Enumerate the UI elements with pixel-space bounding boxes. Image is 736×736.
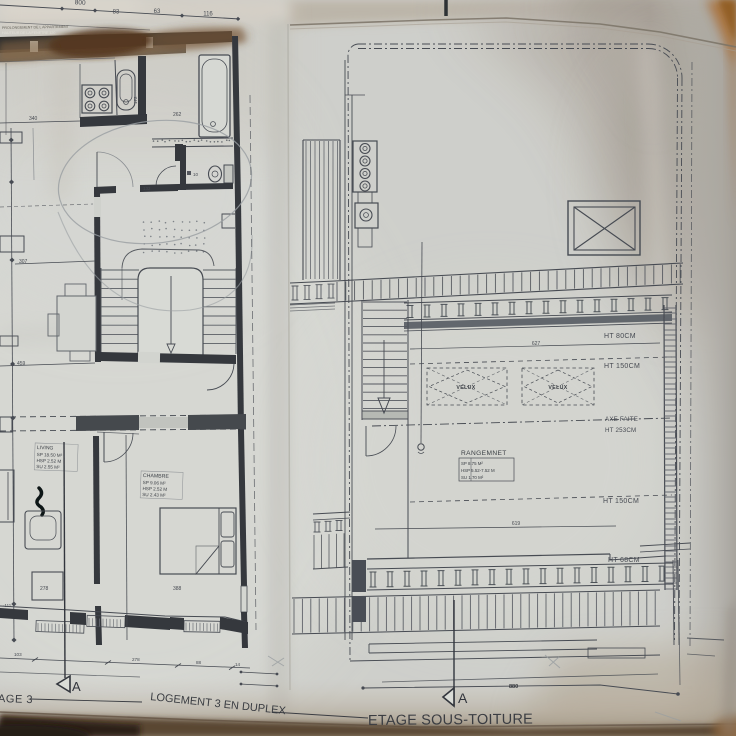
svg-text:SP 8.75 M²: SP 8.75 M²: [461, 461, 483, 466]
svg-text:14: 14: [235, 662, 241, 667]
svg-text:307: 307: [19, 259, 28, 265]
svg-text:AGE 3: AGE 3: [0, 693, 33, 706]
svg-text:627: 627: [532, 341, 541, 347]
svg-text:880: 880: [509, 684, 518, 690]
svg-text:88: 88: [196, 660, 202, 665]
svg-text:HAUTEUR DE LA FENETRE 120: HAUTEUR DE LA FENETRE 120: [2, 31, 55, 35]
svg-text:800: 800: [75, 0, 87, 7]
svg-text:HSP 5.52-7.52 M: HSP 5.52-7.52 M: [461, 468, 495, 473]
svg-text:CHAMBRE: CHAMBRE: [143, 473, 170, 480]
svg-text:SU 2.43 M²: SU 2.43 M²: [142, 492, 166, 498]
svg-text:340: 340: [29, 116, 38, 122]
svg-text:A: A: [458, 690, 468, 706]
svg-text:83: 83: [113, 10, 120, 16]
svg-text:RANGEMNET: RANGEMNET: [461, 450, 507, 457]
svg-text:HSP 2.52 M: HSP 2.52 M: [142, 486, 167, 492]
svg-text:132: 132: [143, 186, 151, 191]
svg-text:278: 278: [132, 657, 140, 662]
svg-text:619: 619: [512, 521, 521, 527]
svg-text:SU 1.70 M²: SU 1.70 M²: [461, 475, 484, 480]
svg-text:HT 253CM: HT 253CM: [605, 427, 636, 434]
svg-text:459: 459: [17, 361, 26, 367]
svg-text:HT 80CM: HT 80CM: [604, 333, 636, 340]
svg-text:SU 2.55 M²: SU 2.55 M²: [36, 464, 60, 470]
svg-text:262: 262: [173, 112, 182, 118]
svg-text:AXE FAITE: AXE FAITE: [605, 416, 638, 423]
svg-text:116: 116: [203, 12, 213, 18]
svg-text:SP 9.06 M²: SP 9.06 M²: [143, 480, 167, 486]
svg-text:LIVING: LIVING: [37, 445, 54, 452]
svg-text:A: A: [72, 679, 81, 694]
svg-text:103: 103: [14, 652, 22, 657]
svg-text:VELUX: VELUX: [548, 385, 567, 391]
svg-text:SP 18.50 M²: SP 18.50 M²: [37, 452, 63, 458]
svg-text:172: 172: [133, 96, 138, 104]
svg-text:388: 388: [173, 586, 182, 592]
svg-text:HT 150CM: HT 150CM: [604, 363, 640, 370]
svg-text:HT 150CM: HT 150CM: [603, 498, 639, 505]
svg-text:278: 278: [40, 586, 49, 592]
svg-text:VELUX: VELUX: [456, 385, 475, 391]
svg-text:10: 10: [193, 172, 199, 177]
svg-text:ETAGE SOUS-TOITURE: ETAGE SOUS-TOITURE: [368, 712, 533, 729]
svg-text:HSP 2.52 M: HSP 2.52 M: [36, 458, 61, 464]
svg-text:63: 63: [154, 9, 161, 15]
svg-text:-111: -111: [3, 603, 12, 608]
